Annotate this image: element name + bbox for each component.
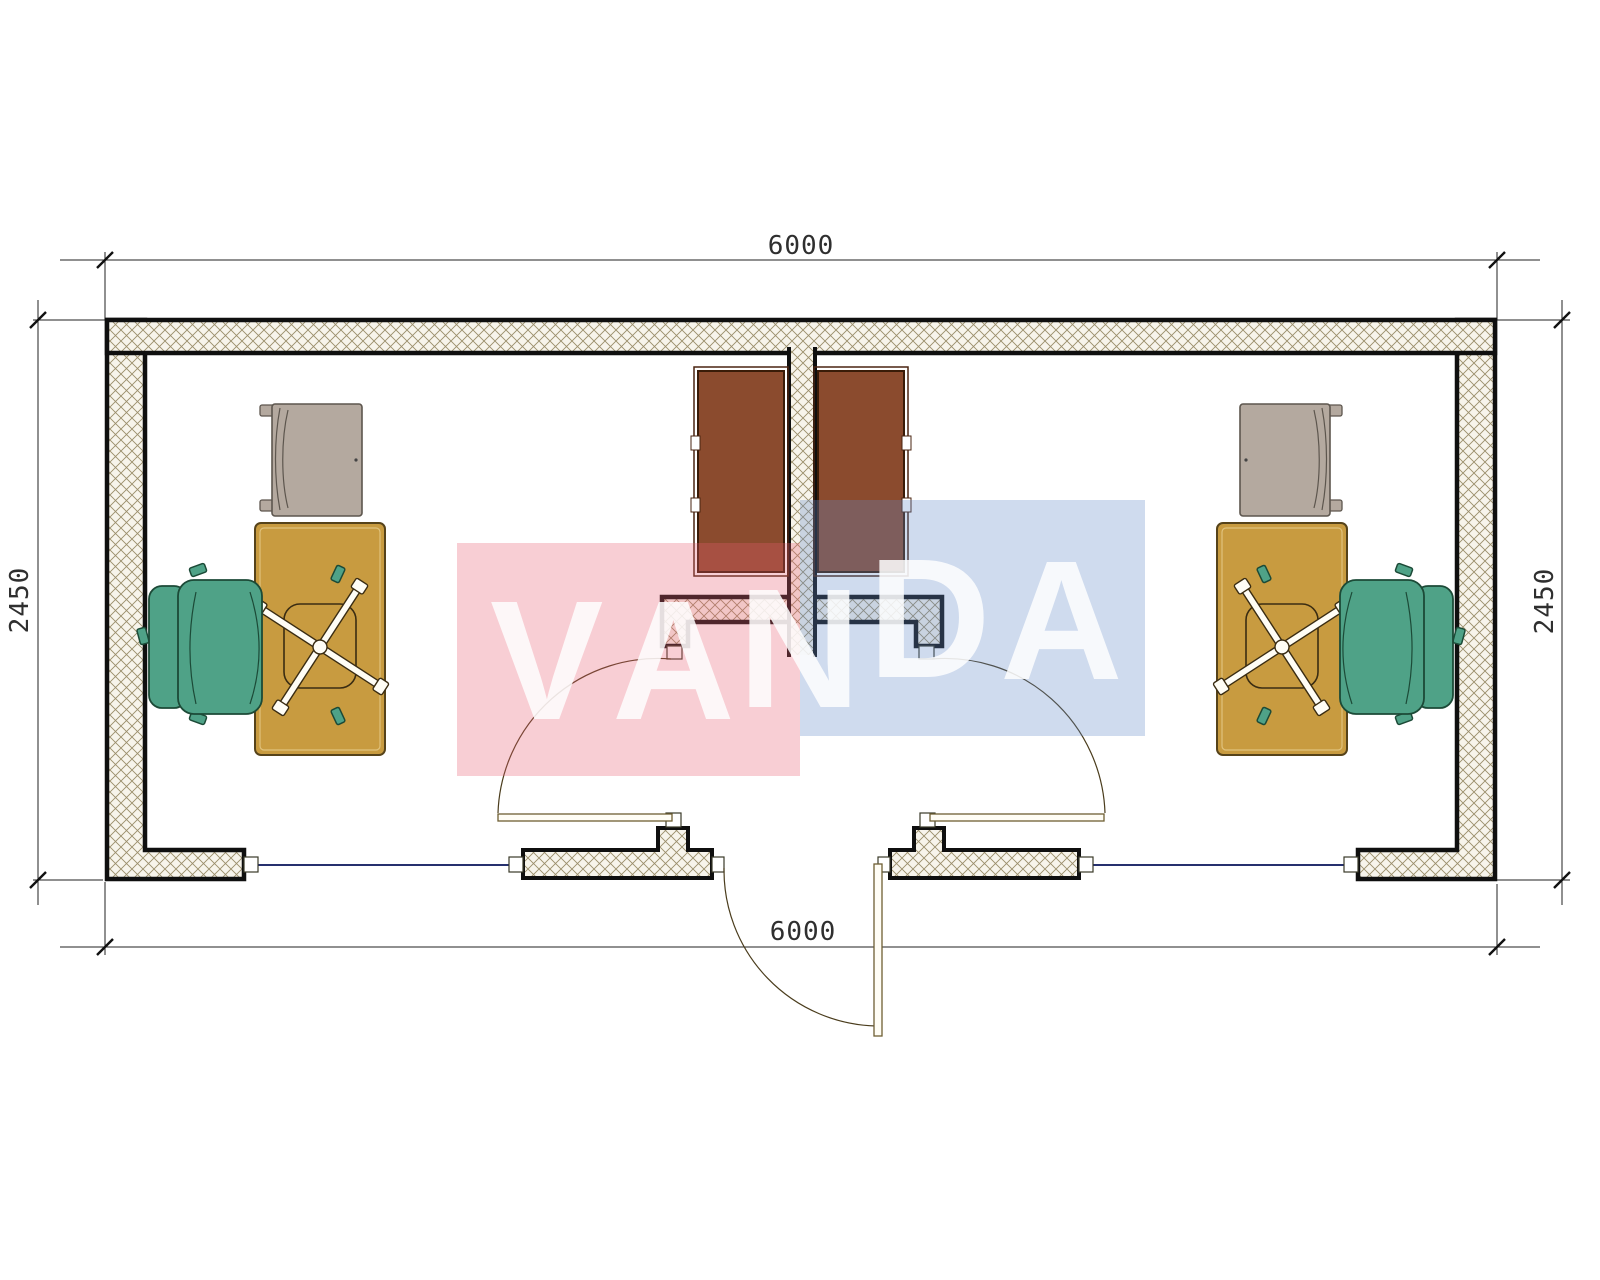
door-leaf [874,864,882,1036]
door-leaf [498,814,672,821]
jamb-stub [1344,857,1358,872]
dimension-text-top: 6000 [768,231,835,261]
jamb-stub [1079,857,1093,872]
dimension-text-right: 2450 [1530,568,1560,635]
dimension-text-bottom: 6000 [770,917,837,947]
watermark-letter: N [738,554,861,744]
floor-plan-canvas: 6000 6000 2450 2450 [0,0,1600,1280]
watermark-letter: V [490,566,603,756]
jamb-stub [712,857,724,872]
jamb-stub [509,857,523,872]
dimension-text-left: 2450 [5,567,35,634]
jamb-stub [244,857,258,872]
watermark-letter: A [1000,526,1123,716]
watermark-letter: D [868,524,991,714]
floor-plan-page: 6000 6000 2450 2450 [0,0,1600,1280]
door-leaf [930,814,1104,821]
watermark-letter: A [612,566,735,756]
